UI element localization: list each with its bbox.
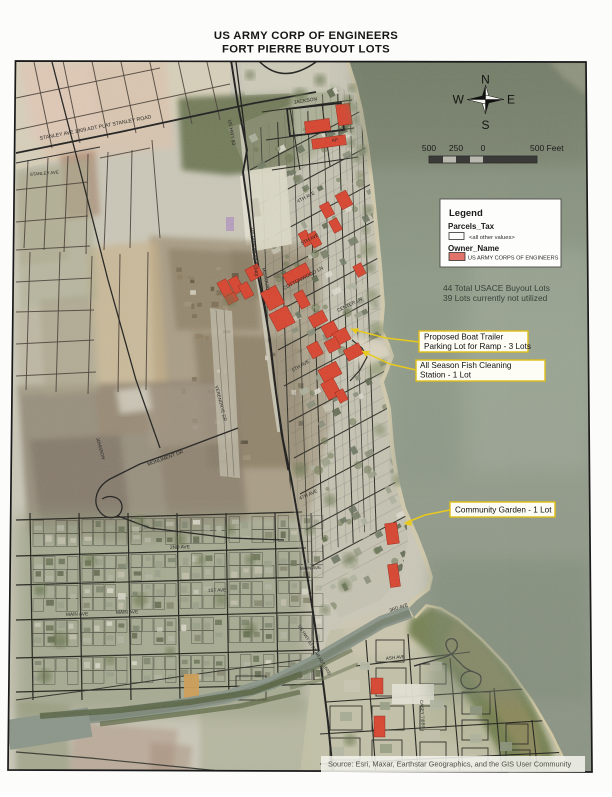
svg-text:39 Lots currently not utilized: 39 Lots currently not utilized — [443, 293, 548, 303]
svg-text:FORT PIERRE BUYOUT LOTS: FORT PIERRE BUYOUT LOTS — [222, 44, 390, 56]
svg-text:Proposed Boat Trailer: Proposed Boat Trailer — [424, 333, 503, 342]
svg-text:US ARMY CORPS OF ENGINEERS: US ARMY CORPS OF ENGINEERS — [468, 256, 559, 262]
svg-text:250: 250 — [449, 143, 463, 153]
svg-text:Legend: Legend — [449, 208, 483, 219]
svg-text:N: N — [481, 73, 490, 87]
svg-text:<all other values>: <all other values> — [469, 235, 515, 241]
svg-text:44 Total USACE Buyout Lots: 44 Total USACE Buyout Lots — [443, 283, 550, 293]
svg-text:E: E — [507, 93, 515, 107]
svg-text:500: 500 — [422, 143, 436, 153]
svg-text:Parking Lot for Ramp - 3 Lots: Parking Lot for Ramp - 3 Lots — [424, 342, 531, 351]
svg-text:Station - 1 Lot: Station - 1 Lot — [420, 371, 472, 380]
svg-text:Source: Esri, Maxar, Earthstar: Source: Esri, Maxar, Earthstar Geographi… — [328, 760, 571, 769]
svg-text:Community Garden - 1 Lot: Community Garden - 1 Lot — [455, 506, 552, 515]
svg-text:All Season Fish Cleaning: All Season Fish Cleaning — [420, 361, 512, 370]
svg-text:W: W — [453, 93, 465, 107]
svg-text:S: S — [481, 118, 489, 132]
svg-text:US ARMY CORP OF ENGINEERS: US ARMY CORP OF ENGINEERS — [214, 30, 398, 42]
svg-text:Parcels_Tax: Parcels_Tax — [448, 222, 495, 231]
svg-text:0: 0 — [481, 143, 486, 153]
svg-text:Owner_Name: Owner_Name — [448, 244, 500, 253]
svg-text:500 Feet: 500 Feet — [530, 143, 564, 153]
